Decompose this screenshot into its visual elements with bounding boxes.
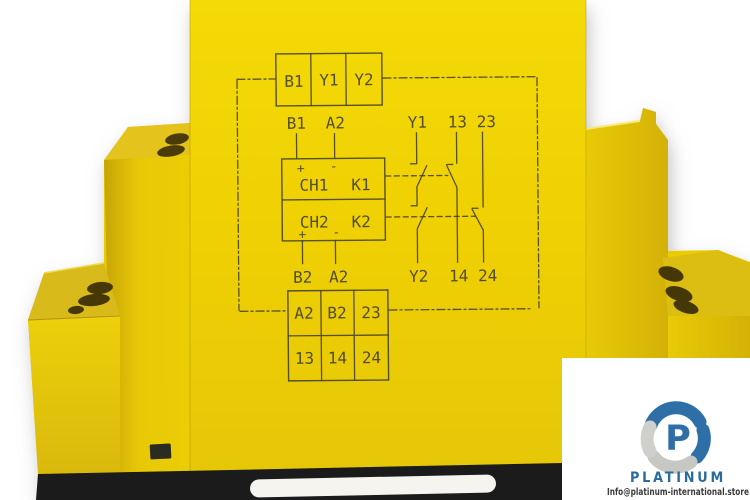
terminal-cell-label: Y1	[319, 70, 338, 89]
device-front-face	[190, 0, 586, 474]
left-terminal-block	[28, 263, 120, 474]
schematic-label-b2: B2	[293, 268, 312, 287]
watermark: P PLATINUM Info@platinum-international.s…	[562, 358, 750, 500]
grid-cell-label: 13	[295, 349, 314, 368]
schematic-label-13: 13	[448, 112, 467, 131]
schematic-label-24: 24	[478, 266, 497, 285]
grid-cell-label: 14	[328, 348, 347, 367]
schematic-label-a2-bottom: A2	[329, 267, 348, 286]
brand-name: PLATINUM	[630, 470, 726, 486]
schematic-label-23: 23	[477, 112, 496, 131]
relay-k1-label: K1	[351, 175, 370, 194]
polarity-plus-bottom: +	[298, 228, 306, 243]
grid-cell-label: 24	[362, 348, 381, 367]
polarity-plus-top: +	[297, 162, 305, 177]
schematic-label-b1: B1	[287, 114, 306, 133]
logo-petal	[647, 427, 650, 451]
grid-cell-label: B2	[327, 303, 346, 322]
schematic-label-14: 14	[449, 266, 468, 285]
schematic-label-y2: Y2	[409, 267, 428, 286]
terminal-cell-label: Y2	[354, 70, 373, 89]
release-latch	[150, 443, 172, 459]
schematic-label-y1: Y1	[408, 113, 427, 132]
channel-1-label: CH1	[299, 176, 328, 195]
logo-letter: P	[665, 419, 691, 459]
polarity-minus-bottom: -	[332, 225, 340, 240]
contact-email: Info@platinum-international.store	[607, 487, 749, 498]
logo-petal	[697, 430, 704, 457]
terminal-cell-label: B1	[284, 72, 303, 91]
grid-cell-label: A2	[294, 304, 313, 323]
relay-k2-label: K2	[352, 212, 371, 231]
polarity-minus-top: -	[330, 159, 338, 174]
grid-cell-label: 23	[361, 303, 380, 322]
photo-canvas: B1 Y1 Y2 B1 A2 Y1 13 23 + - CH1 K1 CH2 K…	[0, 0, 750, 500]
product-photo: B1 Y1 Y2 B1 A2 Y1 13 23 + - CH1 K1 CH2 K…	[0, 0, 750, 500]
schematic-label-a2-top: A2	[326, 113, 345, 132]
